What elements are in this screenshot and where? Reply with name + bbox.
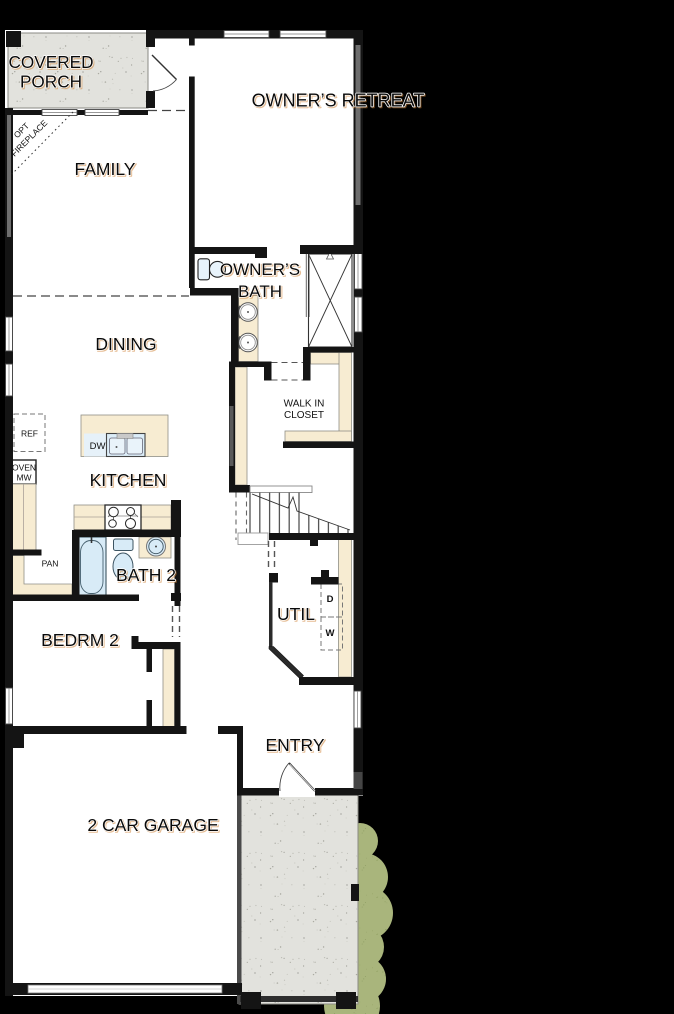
- svg-text:2 CAR GARAGE: 2 CAR GARAGE: [87, 815, 218, 835]
- svg-text:COVERED: COVERED: [9, 52, 94, 72]
- svg-text:OWNER’S: OWNER’S: [220, 260, 300, 279]
- svg-text:DINING: DINING: [95, 334, 156, 354]
- svg-text:BEDRM 2: BEDRM 2: [41, 630, 119, 650]
- svg-text:BATH: BATH: [238, 282, 282, 301]
- svg-text:BATH 2: BATH 2: [116, 565, 176, 585]
- svg-text:MW: MW: [16, 473, 31, 483]
- svg-text:OVEN: OVEN: [12, 463, 36, 473]
- svg-text:CLOSET: CLOSET: [284, 410, 324, 421]
- svg-text:OWNER’S RETREAT: OWNER’S RETREAT: [252, 91, 425, 111]
- svg-text:REF: REF: [21, 429, 38, 439]
- svg-text:FAMILY: FAMILY: [75, 159, 136, 179]
- svg-text:WALK IN: WALK IN: [284, 399, 325, 410]
- svg-text:ENTRY: ENTRY: [266, 735, 325, 755]
- svg-text:W: W: [326, 628, 335, 639]
- svg-text:UTIL: UTIL: [277, 604, 315, 624]
- svg-text:DW: DW: [90, 441, 106, 452]
- svg-text:PORCH: PORCH: [20, 72, 82, 92]
- svg-text:PAN: PAN: [42, 559, 59, 569]
- svg-text:KITCHEN: KITCHEN: [90, 470, 167, 490]
- svg-text:D: D: [327, 594, 334, 605]
